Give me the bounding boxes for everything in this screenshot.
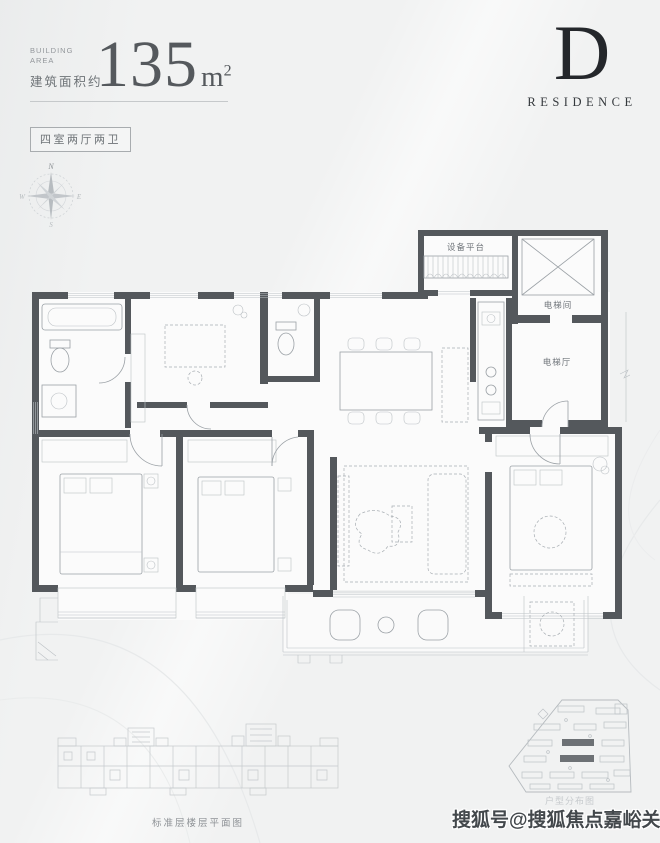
- logo-word: RESIDENCE: [519, 95, 645, 110]
- building-area-label-zh: 建筑面积约: [30, 71, 96, 90]
- area-unit-exponent: 2: [224, 62, 232, 79]
- building-area-label-en: BUILDING AREA: [30, 46, 74, 66]
- site-buildings: [522, 704, 630, 789]
- compass-east-label: E: [76, 193, 82, 201]
- elevator-hall-label: 电梯厅: [543, 357, 572, 367]
- unit-type-box: 四室两厅两卫: [30, 127, 131, 152]
- compass-rose: N S E W: [17, 160, 85, 228]
- standard-floor-strip: [50, 708, 350, 803]
- floorplan-page: BUILDING AREA 建筑面积约 135 m2 四室两厅两卫 D RESI…: [0, 0, 660, 843]
- residence-logo: D RESIDENCE: [519, 14, 645, 110]
- compass-north-label: N: [47, 162, 54, 171]
- highlighted-buildings: [560, 739, 594, 762]
- area-figure: BUILDING AREA 建筑面积约 135 m2: [30, 36, 260, 94]
- site-plan: [500, 680, 655, 810]
- area-value: 135: [96, 36, 198, 94]
- watermark: 搜狐号@搜狐焦点嘉峪关站: [452, 805, 660, 832]
- header: BUILDING AREA 建筑面积约 135 m2 四室两厅两卫: [30, 36, 260, 152]
- equipment-platform-label: 设备平台: [447, 242, 485, 252]
- dimension-line: [620, 312, 630, 422]
- compass-west-label: W: [19, 193, 26, 201]
- area-unit: m2: [201, 63, 232, 94]
- unit-type-label: 四室两厅两卫: [40, 134, 121, 146]
- logo-letter: D: [519, 14, 645, 92]
- header-divider: [30, 101, 228, 102]
- floor-plan: 设备平台 电梯间 电梯厅: [30, 222, 630, 692]
- elevator-shaft-label: 电梯间: [544, 300, 573, 310]
- area-unit-base: m: [201, 61, 224, 93]
- planter-box: [36, 598, 58, 660]
- standard-floor-caption: 标准层楼层平面图: [118, 815, 278, 829]
